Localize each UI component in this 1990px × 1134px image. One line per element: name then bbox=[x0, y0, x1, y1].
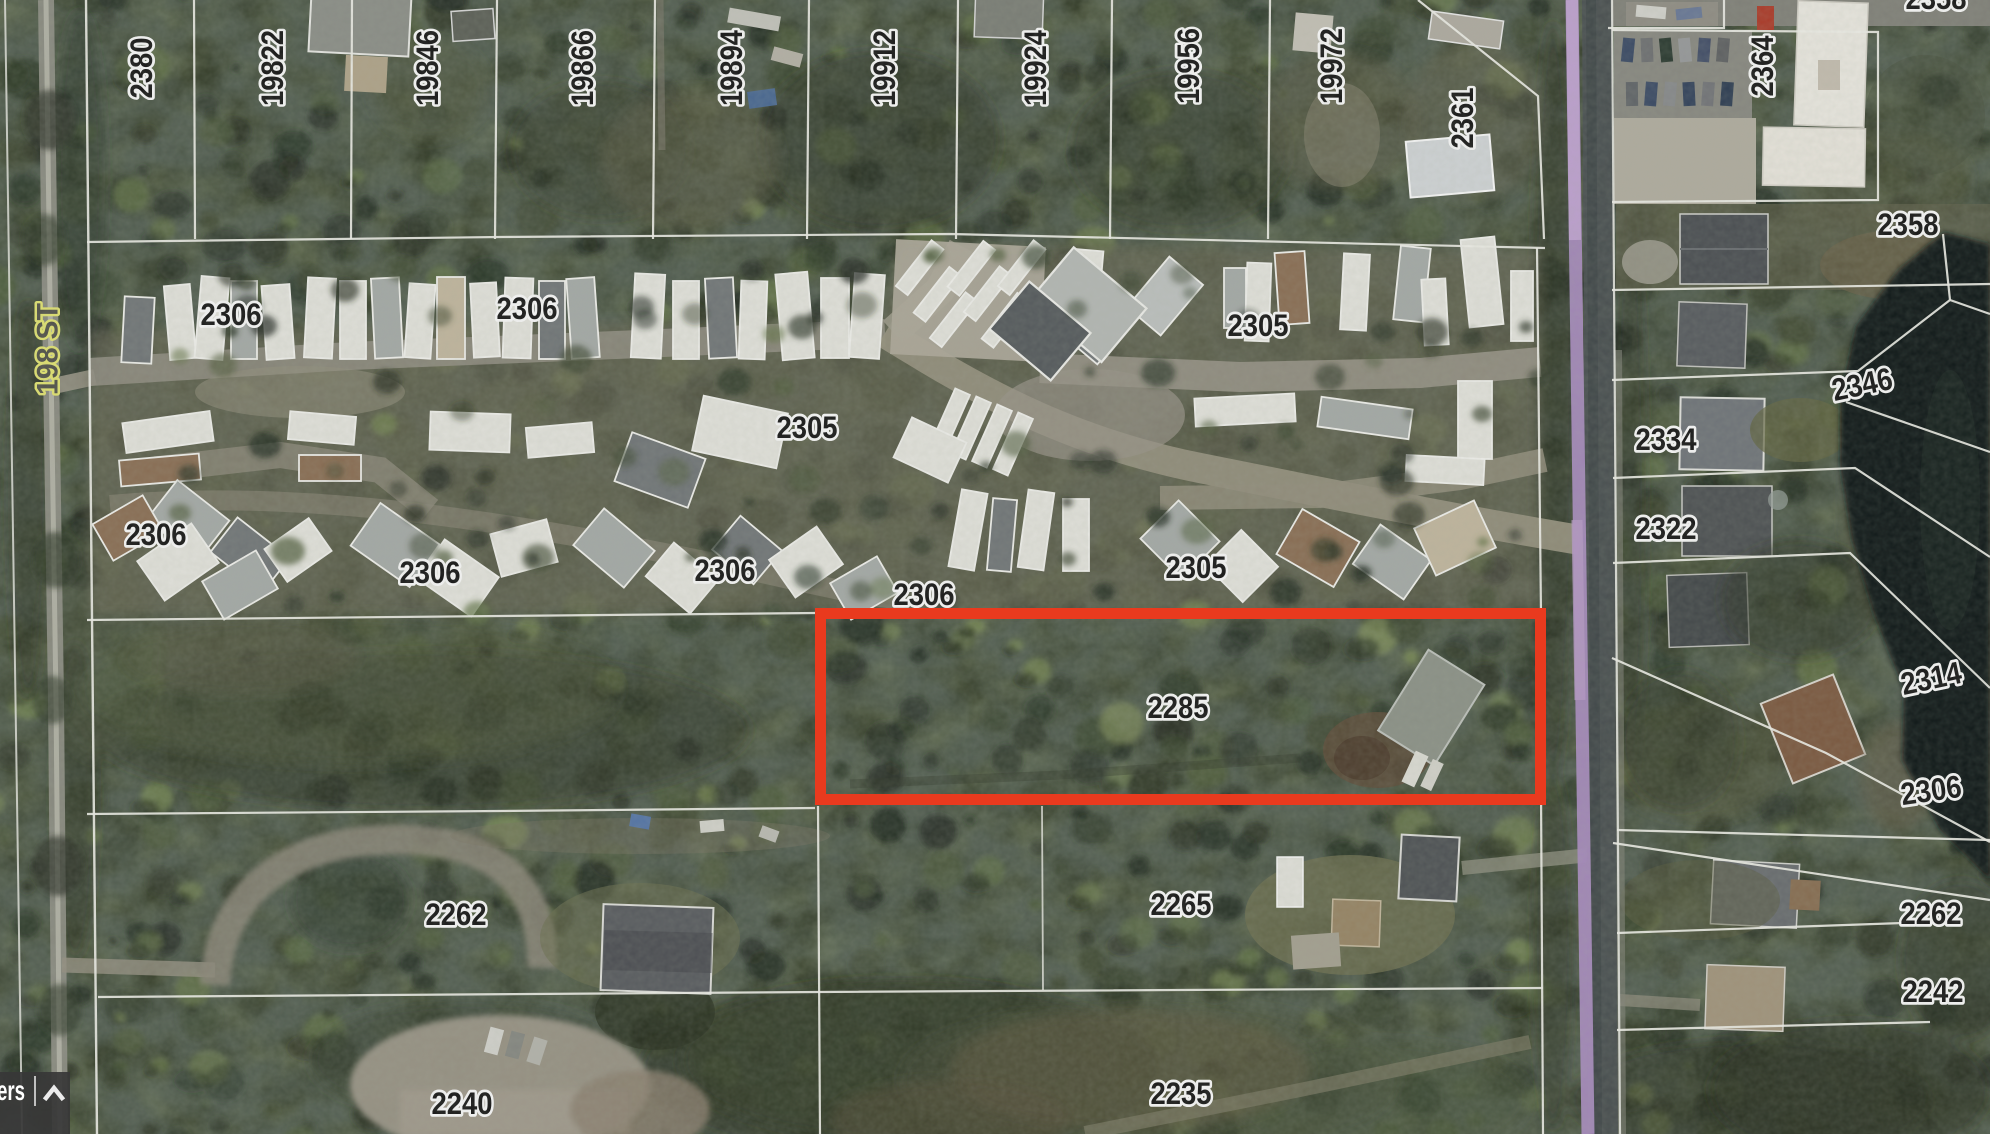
svg-text:ers: ers bbox=[0, 1075, 25, 1106]
